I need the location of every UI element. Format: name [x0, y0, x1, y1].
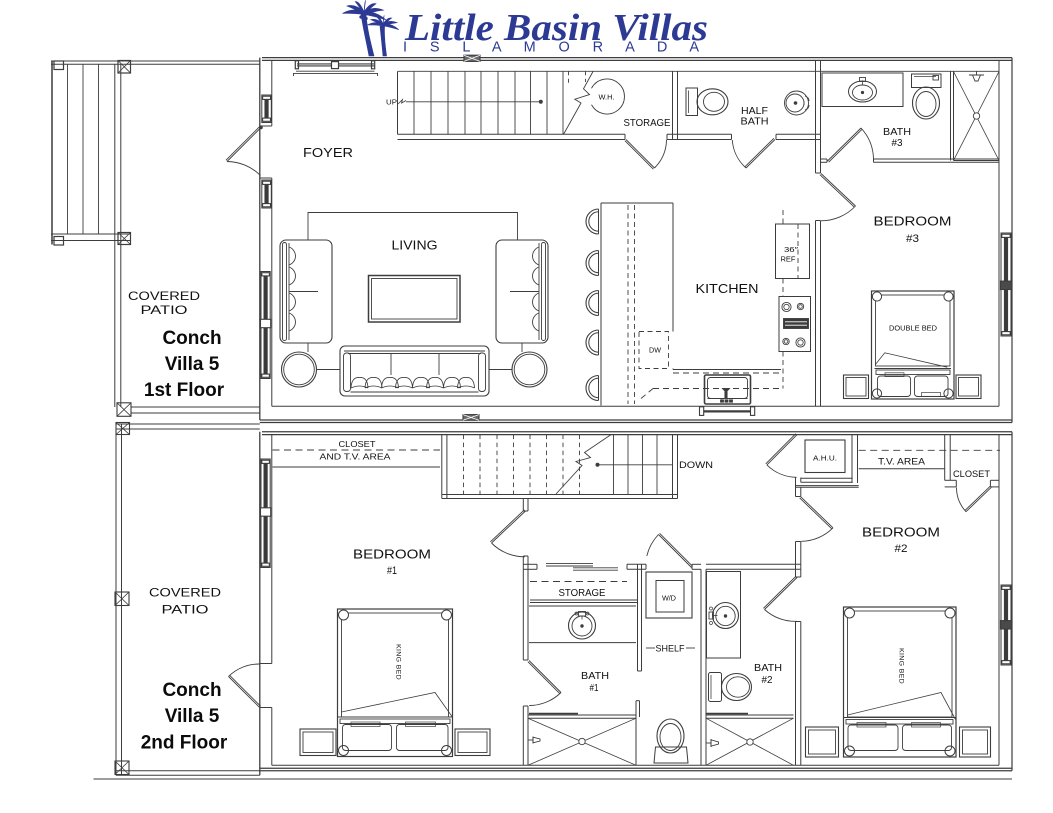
svg-text:#3: #3: [892, 138, 903, 149]
svg-text:1st Floor: 1st Floor: [144, 380, 225, 401]
svg-text:STORAGE: STORAGE: [624, 117, 671, 129]
svg-text:CLOSET: CLOSET: [953, 469, 991, 479]
svg-text:BATH: BATH: [741, 117, 769, 128]
svg-text:KING BED: KING BED: [395, 644, 402, 680]
svg-text:KING BED: KING BED: [898, 648, 905, 684]
svg-text:Conch: Conch: [162, 680, 221, 701]
svg-text:Villa 5: Villa 5: [165, 706, 220, 727]
svg-text:2nd Floor: 2nd Floor: [141, 733, 228, 754]
svg-text:#2: #2: [762, 675, 773, 686]
svg-text:Villa 5: Villa 5: [165, 354, 220, 375]
svg-text:LIVING: LIVING: [392, 239, 438, 253]
svg-text:PATIO: PATIO: [141, 305, 188, 317]
svg-text:BEDROOM: BEDROOM: [874, 215, 952, 229]
svg-text:BATH: BATH: [754, 663, 782, 674]
svg-text:REF: REF: [781, 255, 797, 264]
svg-text:A.H.U.: A.H.U.: [813, 454, 837, 463]
svg-text:HALF: HALF: [741, 106, 768, 117]
svg-text:DOWN: DOWN: [679, 460, 713, 471]
svg-text:#3: #3: [906, 233, 919, 245]
svg-text:UP: UP: [386, 98, 397, 107]
svg-text:KITCHEN: KITCHEN: [696, 282, 759, 296]
svg-text:Conch: Conch: [162, 328, 221, 349]
svg-text:T.V. AREA: T.V. AREA: [878, 457, 926, 468]
svg-text:#2: #2: [895, 543, 908, 555]
svg-text:DOUBLE BED: DOUBLE BED: [889, 326, 937, 333]
svg-text:COVERED: COVERED: [149, 588, 221, 600]
svg-text:#1: #1: [387, 565, 397, 577]
svg-text:BATH: BATH: [581, 671, 609, 682]
svg-text:SHELF: SHELF: [656, 644, 685, 655]
svg-text:DW: DW: [649, 346, 662, 355]
svg-text:PATIO: PATIO: [162, 605, 209, 617]
svg-text:BATH: BATH: [883, 127, 911, 138]
svg-text:STORAGE: STORAGE: [559, 587, 606, 599]
svg-text:BEDROOM: BEDROOM: [862, 526, 940, 540]
svg-text:36″: 36″: [784, 245, 799, 254]
svg-text:W/D: W/D: [662, 594, 677, 603]
svg-text:COVERED: COVERED: [128, 291, 200, 303]
svg-text:BEDROOM: BEDROOM: [353, 548, 431, 562]
svg-text:AND T.V. AREA: AND T.V. AREA: [320, 452, 391, 462]
svg-text:CLOSET: CLOSET: [339, 439, 376, 449]
svg-text:FOYER: FOYER: [303, 146, 353, 160]
svg-text:W.H.: W.H.: [599, 93, 615, 102]
svg-text:#1: #1: [590, 683, 599, 694]
